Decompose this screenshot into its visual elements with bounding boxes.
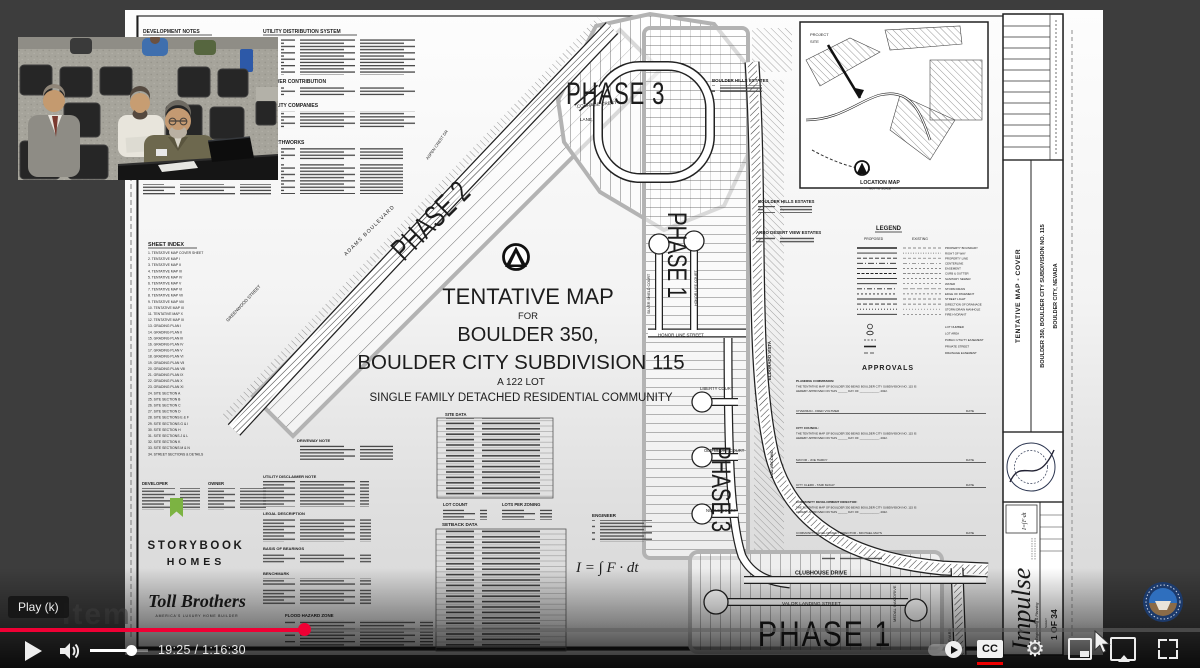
sheet-index-entry: 19. GRADING PLAN VII bbox=[148, 361, 184, 365]
cdd-signature: COMMUNITY DEVELOPMENT DIRECTOR - MICHAEL… bbox=[796, 531, 882, 535]
approval-body: HEREBY APPROVED ON THIS ______ DAY OF __… bbox=[796, 436, 888, 440]
mute-button[interactable] bbox=[56, 639, 82, 663]
mouse-cursor bbox=[1093, 630, 1113, 656]
legend-item: DRAINAGE EASEMENT bbox=[945, 351, 977, 355]
legend-item: DIRECTION OF DRAINAGE bbox=[945, 302, 982, 306]
sheet-index-entry: 25. SITE SECTION B bbox=[148, 397, 181, 401]
autoplay-play-icon bbox=[951, 646, 958, 654]
date-label: DATE bbox=[966, 409, 974, 413]
micro-text bbox=[443, 509, 487, 520]
fullscreen-icon bbox=[1158, 639, 1167, 648]
sheet-index-title: SHEET INDEX bbox=[148, 242, 184, 248]
gear-icon: ⚙ bbox=[1025, 636, 1045, 662]
title-line5: A 122 LOT bbox=[497, 377, 545, 388]
volume-slider[interactable] bbox=[90, 649, 148, 652]
vertical-project-location: BOULDER CITY, NEVADA bbox=[1053, 263, 1059, 328]
legend-item: WATER bbox=[945, 282, 955, 286]
planning-commission-label: PLANNING COMMISSION: bbox=[796, 379, 834, 383]
mayor-signature: MAYOR - JOE HARDY bbox=[796, 458, 828, 462]
name-badge bbox=[156, 149, 167, 156]
time-display: 19:25 / 1:16:30 bbox=[158, 643, 246, 657]
utility-distribution-heading: UTILITY DISTRIBUTION SYSTEM bbox=[263, 29, 341, 35]
play-button[interactable] bbox=[20, 638, 46, 664]
driveway-note-heading: DRIVEWAY NOTE bbox=[297, 438, 330, 443]
approval-body: THE TENTATIVE MAP OF BOULDER 350 BEING B… bbox=[796, 506, 917, 510]
play-tooltip: Play (k) bbox=[8, 596, 69, 618]
progress-played bbox=[0, 628, 305, 632]
title-line6: SINGLE FAMILY DETACHED RESIDENTIAL COMMU… bbox=[369, 392, 672, 404]
volume-handle[interactable] bbox=[126, 645, 137, 656]
legend-existing: EXISTING bbox=[912, 237, 928, 241]
sheet-index-entry: 3. TENTATIVE MAP II bbox=[148, 263, 181, 267]
development-notes-heading: DEVELOPMENT NOTES bbox=[143, 29, 200, 35]
tv-icon bbox=[1110, 637, 1136, 661]
legend-item: PUBLIC UTILITY EASEMENT bbox=[945, 338, 984, 342]
project-site-label2: SITE bbox=[810, 39, 819, 44]
site-data-table bbox=[437, 418, 553, 498]
date-label: DATE bbox=[966, 531, 974, 535]
legal-description-heading: LEGAL DESCRIPTION bbox=[263, 511, 305, 516]
sheet-index-entry: 18. GRADING PLAN VI bbox=[148, 355, 183, 359]
micro-text bbox=[281, 39, 419, 75]
north-arrow-icon bbox=[504, 245, 529, 270]
legend-item: CENTERLINE bbox=[945, 262, 963, 266]
boulder-hills-1-label: BOULDER HILLS ESTATES bbox=[712, 78, 768, 83]
micro-text bbox=[263, 518, 371, 542]
site-data-heading: SITE DATA bbox=[445, 412, 466, 417]
liberty-label: LIBERTY COURT bbox=[700, 386, 734, 391]
vertical-sheet-title: TENTATIVE MAP - COVER bbox=[1015, 249, 1022, 343]
miniplayer-icon bbox=[1068, 638, 1092, 660]
sheet-index-entry: 12. TENTATIVE MAP XI bbox=[148, 318, 184, 322]
legend-item: LOT AREA bbox=[945, 332, 959, 336]
honor-line-label: HONOR LINE STREET bbox=[658, 333, 704, 338]
vertical-project-title: BOULDER 350, BOULDER CITY SUBDIVISION NO… bbox=[1040, 224, 1046, 368]
date-label: DATE bbox=[966, 458, 974, 462]
sheet-index-entry: 7. TENTATIVE MAP VI bbox=[148, 288, 182, 292]
micro-text bbox=[756, 237, 814, 244]
impulse-formula-logo: I=∫F·dt bbox=[1021, 512, 1028, 531]
boulder-hills-2-label: BOULDER HILLS ESTATES bbox=[758, 199, 814, 204]
legend-item: EDGE OF PAVEMENT bbox=[945, 292, 975, 296]
miniplayer-button[interactable] bbox=[1068, 640, 1092, 658]
approval-body: THE TENTATIVE MAP OF BOULDER 350 BEING B… bbox=[796, 432, 917, 436]
sheet-index-entry: 32. SITE SECTION K bbox=[148, 440, 181, 444]
micro-text bbox=[712, 85, 762, 92]
legend-item: FIRE HYDRANT bbox=[945, 313, 967, 317]
legend-item: PRIVATE STREET bbox=[945, 345, 969, 349]
sheet-index-entry: 17. GRADING PLAN V bbox=[148, 349, 183, 353]
fullscreen-button[interactable] bbox=[1158, 639, 1178, 659]
courage-lane-label: LANE bbox=[580, 117, 592, 122]
city-council-label: CITY COUNCIL: bbox=[796, 426, 819, 430]
micro-text bbox=[297, 445, 393, 460]
micro-text bbox=[281, 164, 403, 194]
sheet-index-entry: 20. GRADING PLAN VIII bbox=[148, 367, 185, 371]
cdd-label: COMMUNITY DEVELOPMENT DIRECTOR: bbox=[796, 500, 857, 504]
video-player[interactable]: PHASE 3 PHASE 2 PHASE 1 PHASE 3 PHASE 1 … bbox=[0, 0, 1200, 668]
sheet-index-entry: 14. GRADING PLAN II bbox=[148, 330, 182, 334]
micro-text bbox=[281, 87, 417, 97]
approval-body: THE TENTATIVE MAP OF BOULDER 350 BEING B… bbox=[796, 385, 917, 389]
legend-item: CURB & GUTTER bbox=[945, 272, 969, 276]
sheet-index-entry: 13. GRADING PLAN I bbox=[148, 324, 181, 328]
micro-text bbox=[208, 488, 266, 510]
basis-of-bearings-heading: BASIS OF BEARINGS bbox=[263, 546, 304, 551]
location-map: PROJECT SITE LOCATION MAP NOT TO SCALE bbox=[800, 22, 988, 191]
phase3-low-label: PHASE 3 bbox=[706, 446, 735, 532]
legend-item: SANITARY SEWER bbox=[945, 277, 971, 281]
sheet-index-entry: 23. GRADING PLAN XI bbox=[148, 385, 183, 389]
old-glory-label: OLD GLORY COURT bbox=[704, 448, 745, 453]
lou-vecchio-label: LOU VECCHIO bbox=[769, 450, 774, 478]
title-line2: FOR bbox=[518, 311, 538, 322]
lots-per-zoning-heading: LOTS PER ZONING bbox=[502, 502, 540, 507]
micro-text bbox=[592, 520, 652, 542]
sheet-index-entry: 31. SITE SECTIONS J & L bbox=[148, 434, 188, 438]
sheet-index-entry: 11. TENTATIVE MAP X bbox=[148, 312, 184, 316]
noble-label: NOBLE COURT bbox=[706, 508, 737, 513]
legend-item: STORM DRAIN bbox=[945, 287, 965, 291]
boulder-city-seal bbox=[1141, 580, 1185, 624]
autoplay-knob bbox=[945, 641, 962, 658]
play-icon bbox=[25, 641, 42, 661]
arbo-label: ARBO DESERT VIEW ESTATES bbox=[756, 230, 821, 235]
approval-body: HEREBY APPROVED ON THIS ______ DAY OF __… bbox=[796, 389, 888, 393]
settings-button[interactable]: ⚙ bbox=[1022, 634, 1048, 664]
chairman-signature: CHAIRMAN - FRED VOLTMER bbox=[796, 409, 840, 413]
approval-body: HEREBY APPROVED ON THIS ______ DAY OF __… bbox=[796, 510, 888, 514]
sheet-index-entry: 27. SITE SECTION D bbox=[148, 410, 181, 414]
side-table bbox=[256, 87, 278, 101]
location-map-title: LOCATION MAP bbox=[860, 180, 900, 186]
date-label: DATE bbox=[966, 483, 974, 487]
micro-text bbox=[281, 148, 403, 160]
title-block: TENTATIVE MAP - COVER BOULDER 350, BOULD… bbox=[1003, 14, 1063, 655]
honor-life-label: HONOR LIFE COURT bbox=[694, 270, 698, 306]
setback-data-heading: SETBACK DATA bbox=[442, 522, 478, 527]
sheet-index-entry: 29. SITE SECTIONS G & I bbox=[148, 422, 188, 426]
legend-item: RIGHT OF WAY bbox=[945, 251, 966, 255]
legend-item: LOT NUMBER bbox=[945, 325, 964, 329]
sheet-index-entry: 1. TENTATIVE MAP COVER SHEET bbox=[148, 251, 203, 255]
storybook-homes-word: HOMES bbox=[167, 556, 226, 568]
sheet-index-entry: 6. TENTATIVE MAP V bbox=[148, 282, 182, 286]
micro-text bbox=[502, 509, 552, 520]
meeting-camera-inset bbox=[18, 37, 278, 180]
legend-title: LEGEND bbox=[876, 226, 902, 232]
play-on-tv-button[interactable] bbox=[1110, 639, 1136, 659]
legend-item: EASEMENT bbox=[945, 267, 961, 271]
micro-text bbox=[281, 111, 417, 129]
progress-bar[interactable] bbox=[0, 628, 1200, 632]
micro-text bbox=[143, 184, 271, 195]
developer-heading: DEVELOPER bbox=[142, 481, 168, 486]
legend-item: STORM DRAIN MANHOLE bbox=[945, 307, 980, 311]
legend-item: STREET LIGHT bbox=[945, 297, 966, 301]
sheet-index-entry: 34. STREET SECTIONS & DETAILS bbox=[148, 452, 204, 456]
utility-disclaimer-heading: UTILITY DISCLAIMER NOTE bbox=[263, 474, 317, 479]
sheet-index-entry: 16. GRADING PLAN IV bbox=[148, 343, 184, 347]
sheet-index-entry: 2. TENTATIVE MAP I bbox=[148, 257, 180, 261]
silver-shield-label: SILVER SHIELD COURT bbox=[647, 273, 651, 314]
legend-item: PROPERTY LINE bbox=[945, 256, 968, 260]
autoplay-toggle[interactable] bbox=[928, 644, 960, 656]
engineer-heading: ENGINEER bbox=[592, 513, 617, 518]
micro-text bbox=[263, 481, 369, 507]
progress-scrubber[interactable] bbox=[298, 623, 311, 636]
micro-text bbox=[822, 556, 882, 560]
title-line4: BOULDER CITY SUBDIVISION 115 bbox=[357, 351, 684, 374]
clerk-signature: CITY CLERK - TAMI McKAY bbox=[796, 483, 835, 487]
sheet-index-entry: 26. SITE SECTION C bbox=[148, 404, 181, 408]
sheet-index-entry: 5. TENTATIVE MAP IV bbox=[148, 275, 183, 279]
micro-text bbox=[758, 206, 812, 213]
title-line1: TENTATIVE MAP bbox=[442, 284, 614, 309]
sheet-index-entry: 9. TENTATIVE MAP VIII bbox=[148, 300, 184, 304]
project-site-label: PROJECT bbox=[810, 32, 829, 37]
legend-proposed: PROPOSED bbox=[864, 237, 884, 241]
phase1-mid-label: PHASE 1 bbox=[662, 212, 691, 298]
eldorado-label: ELDORADO VISTA bbox=[767, 340, 772, 380]
approvals-title: APPROVALS bbox=[862, 365, 914, 372]
sheet-index-entry: 8. TENTATIVE MAP VII bbox=[148, 294, 183, 298]
captions-button[interactable]: CC bbox=[977, 640, 1003, 658]
location-map-subtitle: NOT TO SCALE bbox=[869, 187, 891, 191]
storybook-wordmark: STORYBOOK bbox=[148, 540, 245, 552]
sheet-index-entry: 28. SITE SECTIONS E & F bbox=[148, 416, 189, 420]
sheet-index-entry: 30. SITE SECTION H bbox=[148, 428, 181, 432]
sheet-index-entry: 24. SITE SECTION A bbox=[148, 391, 181, 395]
sheet-index-entry: 10. TENTATIVE MAP IX bbox=[148, 306, 185, 310]
captions-active-indicator bbox=[977, 662, 1003, 665]
title-line3: BOULDER 350, bbox=[457, 324, 598, 346]
sheet-index-entry: 22. GRADING PLAN X bbox=[148, 379, 183, 383]
volume-icon bbox=[57, 639, 81, 663]
owner-heading: OWNER bbox=[208, 481, 224, 486]
micro-text bbox=[263, 553, 371, 564]
player-controls: 19:25 / 1:16:30 CC ⚙ bbox=[0, 636, 1200, 668]
lot-count-heading: LOT COUNT bbox=[443, 502, 468, 507]
sheet-index-entry: 33. SITE SECTIONS M & N bbox=[148, 446, 190, 450]
sheet-index-entry: 21. GRADING PLAN IX bbox=[148, 373, 184, 377]
legend-item: PROPERTY BOUNDARY bbox=[945, 246, 978, 250]
sheet-index-entry: 4. TENTATIVE MAP III bbox=[148, 269, 182, 273]
volume-fill bbox=[90, 649, 130, 652]
sheet-index-entry: 15. GRADING PLAN III bbox=[148, 336, 183, 340]
